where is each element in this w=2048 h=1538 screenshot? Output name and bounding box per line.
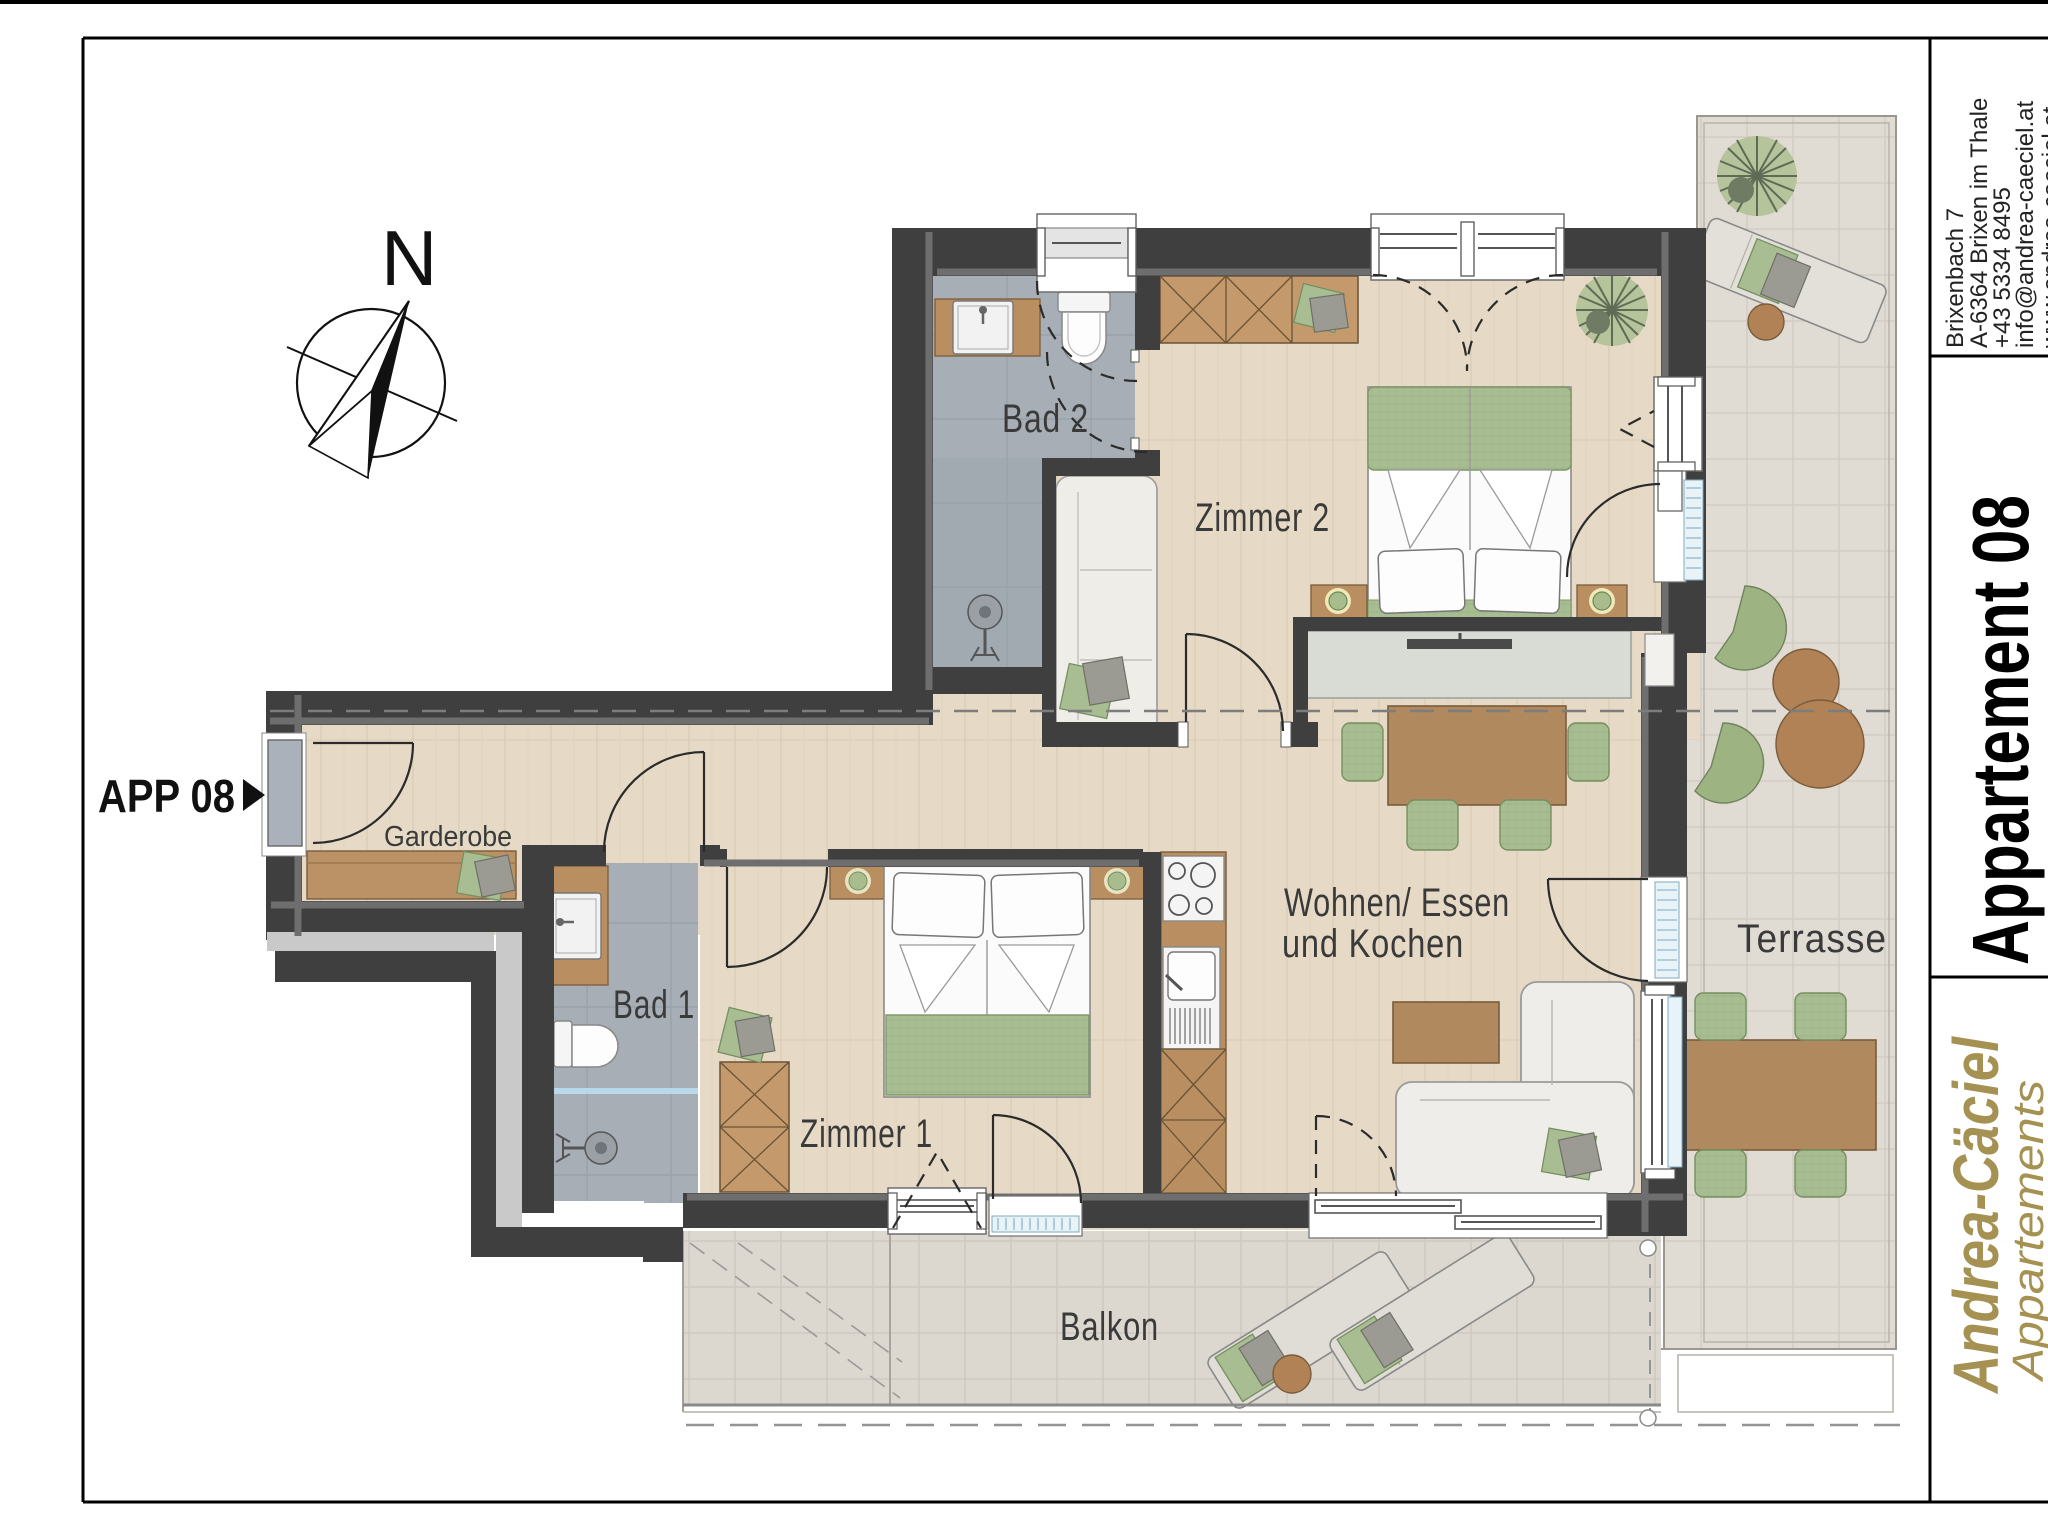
svg-text:Appartements: Appartements [2004, 1080, 2048, 1383]
svg-text:Bad 1: Bad 1 [613, 983, 695, 1027]
svg-text:Appartement 08: Appartement 08 [1956, 495, 2045, 965]
svg-text:N: N [381, 214, 437, 302]
svg-text:Zimmer 2: Zimmer 2 [1195, 496, 1330, 540]
svg-text:Zimmer 1: Zimmer 1 [800, 1112, 933, 1156]
svg-text:info@andrea-caeciel.at: info@andrea-caeciel.at [2012, 100, 2039, 348]
svg-text:APP 08: APP 08 [98, 770, 235, 822]
svg-text:Brixenbach 7: Brixenbach 7 [1942, 208, 1969, 348]
svg-text:Wohnen/ Essen: Wohnen/ Essen [1284, 881, 1510, 925]
svg-text:Bad 2: Bad 2 [1002, 397, 1089, 441]
svg-text:Balkon: Balkon [1060, 1305, 1159, 1349]
svg-text:und Kochen: und Kochen [1282, 922, 1464, 966]
svg-text:Terrasse: Terrasse [1737, 917, 1887, 961]
svg-text:www.andrea-caeciel.at: www.andrea-caeciel.at [2038, 106, 2048, 349]
svg-text:Andrea-Cäciel: Andrea-Cäciel [1940, 1036, 2012, 1395]
svg-text:Garderobe: Garderobe [384, 821, 512, 853]
